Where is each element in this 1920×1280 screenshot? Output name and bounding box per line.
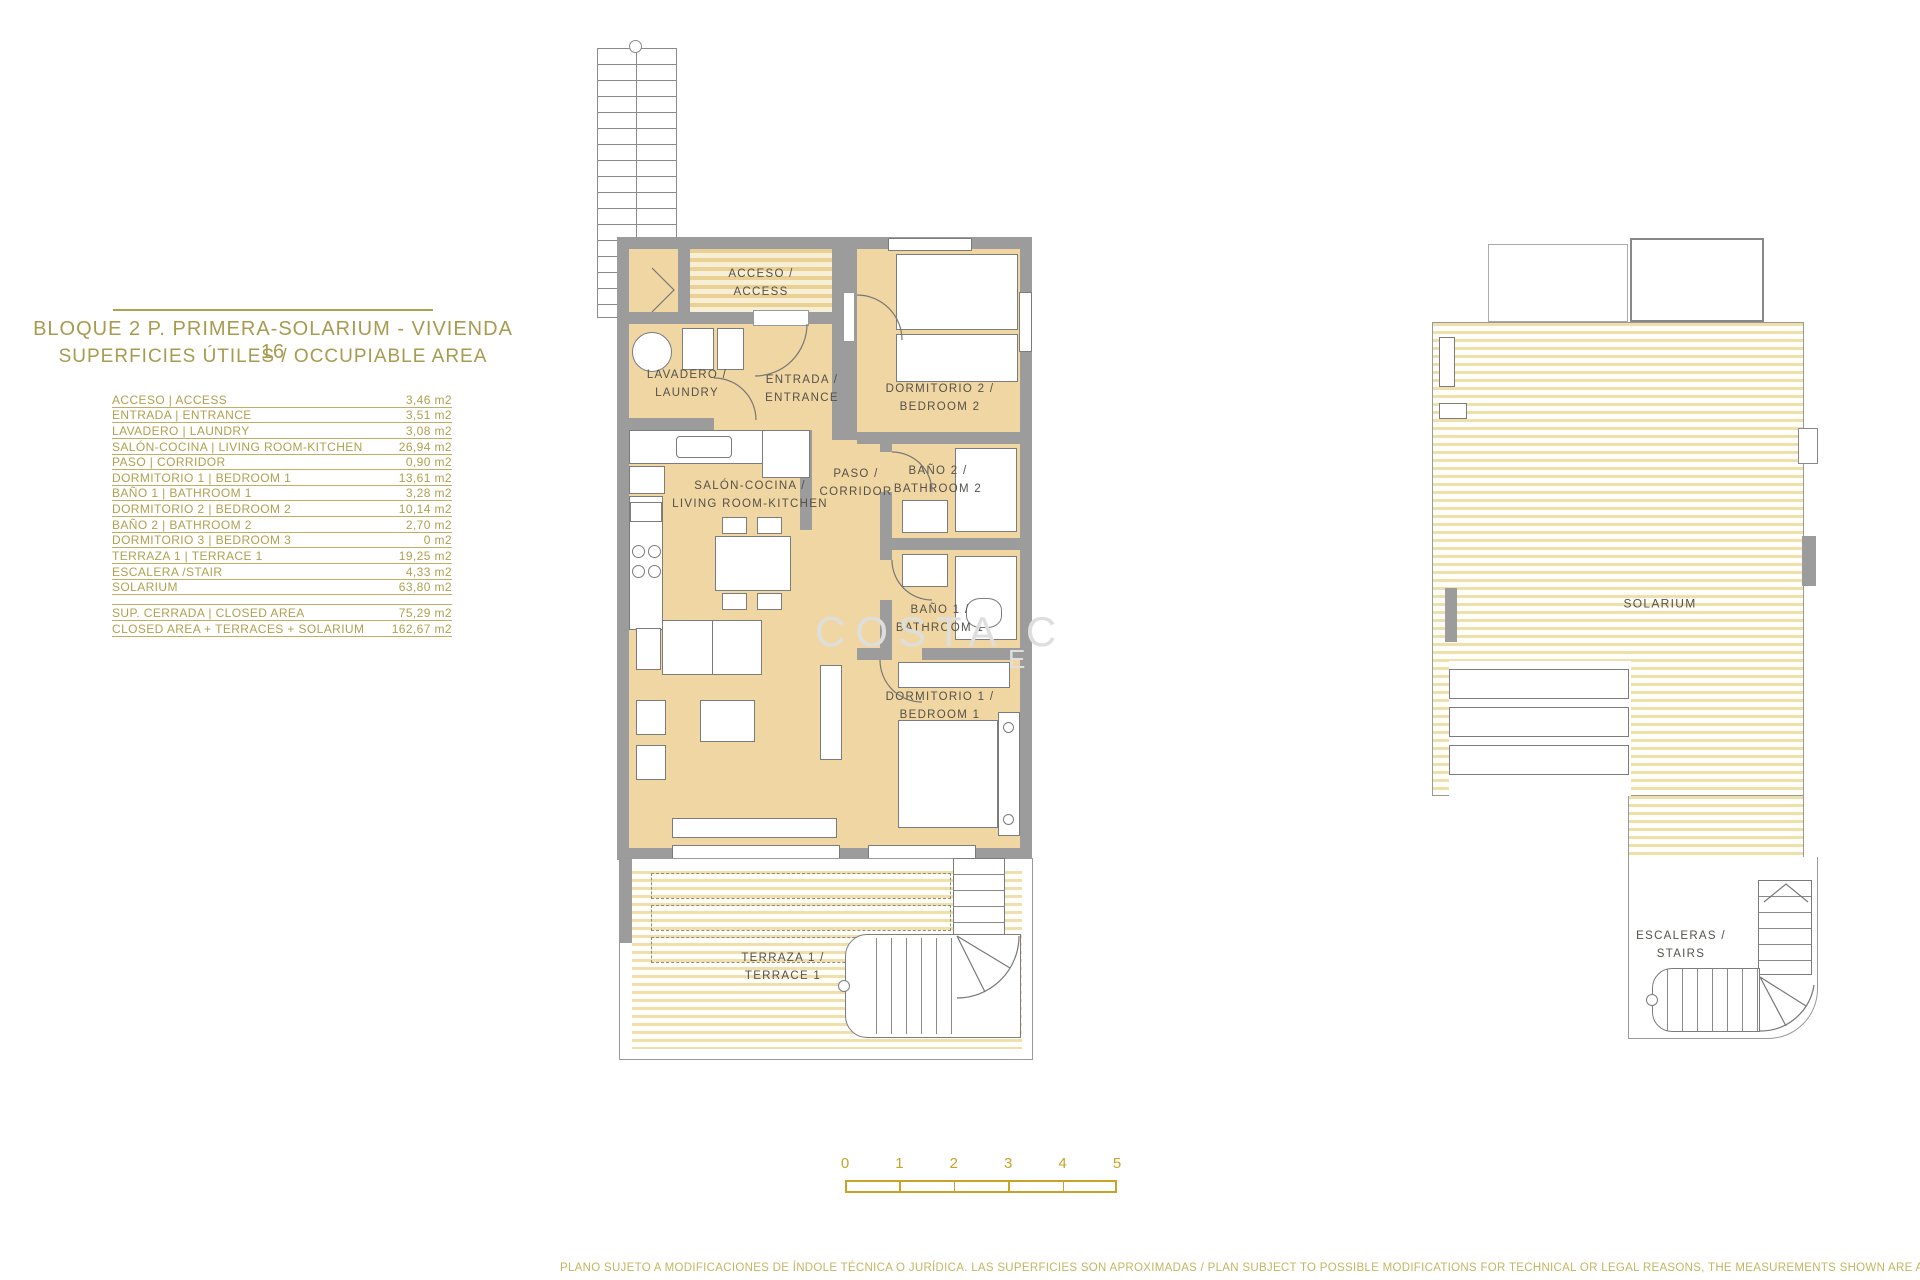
table-row: BAÑO 2 | BATHROOM 22,70 m2 [112, 517, 452, 533]
row-value: 3,08 m2 [406, 424, 452, 438]
row-label: SOLARIUM [112, 580, 178, 594]
coffee-table [700, 700, 755, 742]
wall [857, 432, 1020, 444]
burner-icon [648, 565, 661, 578]
room-label-solarium: SOLARIUM [1623, 595, 1696, 614]
floorplan-page: BLOQUE 2 P. PRIMERA-SOLARIUM - VIVIENDA … [0, 0, 1920, 1280]
areas-table: ACCESO | ACCESS3,46 m2 ENTRADA | ENTRANC… [112, 392, 452, 637]
table-summary: SUP. CERRADA | CLOSED AREA75,29 m2 CLOSE… [112, 604, 452, 636]
row-value: 2,70 m2 [406, 518, 452, 532]
row-value: 63,80 m2 [399, 580, 452, 594]
row-value: 75,29 m2 [399, 606, 452, 620]
solarium-extension [1628, 796, 1804, 857]
grill-icon [630, 502, 662, 522]
dining-chair [722, 517, 747, 534]
row-label: ESCALERA /STAIR [112, 565, 222, 579]
wall [1802, 536, 1816, 586]
bathroom-sink [902, 554, 948, 587]
room-label-dormitorio2: DORMITORIO 2 / BEDROOM 2 [886, 381, 995, 417]
dining-chair [757, 593, 782, 610]
table-row: PASO | CORRIDOR0,90 m2 [112, 455, 452, 471]
row-value: 10,14 m2 [399, 502, 452, 516]
window [888, 238, 972, 251]
title-rule [113, 309, 433, 311]
vent-icon [1439, 337, 1455, 387]
pergola-dashed-outline [651, 905, 951, 931]
disclaimer-text: PLANO SUJETO A MODIFICACIONES DE ÍNDOLE … [560, 1262, 1920, 1274]
planter-box [1449, 707, 1629, 737]
table-row: ENTRADA | ENTRANCE3,51 m2 [112, 408, 452, 424]
row-value: 26,94 m2 [399, 440, 452, 454]
dryer-icon [717, 328, 744, 370]
room-label-terraza: TERRAZA 1 / TERRACE 1 [741, 950, 824, 986]
burner-icon [632, 565, 645, 578]
nightstand-lamp-icon [1003, 722, 1014, 733]
row-label: DORMITORIO 1 | BEDROOM 1 [112, 471, 291, 485]
row-label: TERRAZA 1 | TERRACE 1 [112, 549, 263, 563]
terrace-stair-start-circle [838, 980, 850, 992]
row-label: ACCESO | ACCESS [112, 393, 227, 407]
room-label-escaleras: ESCALERAS / STAIRS [1636, 928, 1726, 964]
row-label: CLOSED AREA + TERRACES + SOLARIUM [112, 622, 364, 636]
vent-icon [1439, 403, 1467, 419]
storage-unit [636, 745, 666, 780]
window [1019, 292, 1032, 352]
stair-bulkhead-box [1630, 238, 1764, 322]
row-value: 13,61 m2 [399, 471, 452, 485]
roof-box [1488, 244, 1628, 322]
solarium-stair-upper-flight [1758, 880, 1812, 975]
wall [629, 312, 755, 324]
room-label-acceso: ACCESO / ACCESS [728, 266, 793, 302]
wall [629, 418, 714, 430]
row-value: 4,33 m2 [406, 565, 452, 579]
bed [898, 720, 998, 828]
planter-box [1449, 745, 1629, 775]
room-label-salon: SALÓN-COCINA / LIVING ROOM-KITCHEN [672, 478, 828, 514]
nightstand-lamp-icon [1003, 814, 1014, 825]
planter-box [1449, 669, 1629, 699]
table-row: CLOSED AREA + TERRACES + SOLARIUM162,67 … [112, 621, 452, 637]
dining-chair [722, 593, 747, 610]
wall [832, 249, 857, 440]
row-value: 0 m2 [424, 533, 452, 547]
bathroom-sink [902, 500, 948, 533]
row-label: PASO | CORRIDOR [112, 455, 226, 469]
scale-tick-label: 2 [950, 1155, 958, 1172]
table-row: ESCALERA /STAIR4,33 m2 [112, 564, 452, 580]
row-label: DORMITORIO 2 | BEDROOM 2 [112, 502, 291, 516]
table-row: BAÑO 1 | BATHROOM 13,28 m2 [112, 486, 452, 502]
table-row: DORMITORIO 1 | BEDROOM 113,61 m2 [112, 470, 452, 486]
row-label: LAVADERO | LAUNDRY [112, 424, 250, 438]
wall [807, 312, 832, 324]
dining-chair [757, 517, 782, 534]
scale-tick-label: 5 [1113, 1155, 1121, 1172]
row-label: ENTRADA | ENTRANCE [112, 408, 252, 422]
row-value: 3,51 m2 [406, 408, 452, 422]
oven-icon [762, 430, 810, 478]
scale-bar: 0 1 2 3 4 5 [845, 1155, 1117, 1197]
table-row: SUP. CERRADA | CLOSED AREA75,29 m2 [112, 605, 452, 621]
row-label: BAÑO 1 | BATHROOM 1 [112, 486, 252, 500]
scale-tick-label: 1 [895, 1155, 903, 1172]
dresser [898, 662, 1010, 688]
row-label: DORMITORIO 3 | BEDROOM 3 [112, 533, 291, 547]
scale-tick-label: 3 [1004, 1155, 1012, 1172]
dining-table [715, 536, 791, 591]
table-row: ACCESO | ACCESS3,46 m2 [112, 392, 452, 408]
scale-tick-label: 4 [1058, 1155, 1066, 1172]
solarium-area [1432, 322, 1804, 796]
room-label-dormitorio1: DORMITORIO 1 / BEDROOM 1 [886, 689, 995, 725]
room-label-entrada: ENTRADA / ENTRANCE [765, 372, 839, 408]
watermark: COSTA C [815, 608, 1066, 656]
row-label: SALÓN-COCINA | LIVING ROOM-KITCHEN [112, 440, 363, 454]
side-table [636, 700, 666, 735]
scale-bar-rule [845, 1180, 1117, 1193]
sofa-cushion-line [712, 621, 713, 674]
row-value: 3,46 m2 [406, 393, 452, 407]
burner-icon [632, 545, 645, 558]
table-row: LAVADERO | LAUNDRY3,08 m2 [112, 423, 452, 439]
terrace-stair-upper-flight [953, 858, 1005, 936]
wall [880, 538, 1020, 550]
row-value: 0,90 m2 [406, 455, 452, 469]
scale-divider [899, 1182, 901, 1191]
scale-tick-label: 0 [841, 1155, 849, 1172]
room-label-lavadero: LAVADERO / LAUNDRY [647, 367, 727, 403]
bed [896, 334, 1018, 382]
terrace-stair-treads [862, 938, 954, 1034]
table-row: SOLARIUM63,80 m2 [112, 580, 452, 596]
row-value: 19,25 m2 [399, 549, 452, 563]
bed [896, 254, 1018, 330]
solarium-stair-start-circle [1646, 994, 1658, 1006]
watermark-second-line: E [1008, 644, 1025, 675]
row-value: 3,28 m2 [406, 486, 452, 500]
burner-icon [648, 545, 661, 558]
scale-divider [1063, 1182, 1065, 1191]
kitchen-cabinet [629, 466, 665, 494]
row-value: 162,67 m2 [392, 622, 452, 636]
entrance-doorway [753, 310, 809, 326]
row-label: BAÑO 2 | BATHROOM 2 [112, 518, 252, 532]
washer-icon [682, 328, 714, 370]
pergola-dashed-outline [651, 873, 951, 899]
row-label: SUP. CERRADA | CLOSED AREA [112, 606, 305, 620]
boiler-icon [632, 332, 672, 372]
table-row: SALÓN-COCINA | LIVING ROOM-KITCHEN26,94 … [112, 439, 452, 455]
solarium-stair-lower-flight [1652, 968, 1760, 1032]
wall [620, 859, 632, 943]
table-row: DORMITORIO 2 | BEDROOM 210,14 m2 [112, 501, 452, 517]
armchair [636, 628, 661, 670]
wall [880, 444, 892, 452]
table-row: DORMITORIO 3 | BEDROOM 30 m2 [112, 533, 452, 549]
kitchen-sink [676, 436, 732, 458]
tv-bench [672, 818, 837, 838]
scale-divider [954, 1182, 956, 1191]
window [1798, 428, 1818, 464]
wall [1445, 588, 1457, 642]
scale-divider [1008, 1182, 1010, 1191]
wall [678, 249, 690, 312]
table-row: TERRAZA 1 | TERRACE 119,25 m2 [112, 548, 452, 564]
door-frame [843, 292, 855, 342]
corridor-closet [820, 665, 842, 760]
page-subtitle: SUPERFICIES ÚTILES / OCCUPIABLE AREA [33, 346, 513, 368]
room-label-bano2: BAÑO 2 / BATHROOM 2 [894, 463, 982, 499]
planter-block [1449, 661, 1631, 797]
room-label-paso: PASO / CORRIDOR [819, 466, 892, 502]
access-stair-start-circle [629, 40, 642, 53]
